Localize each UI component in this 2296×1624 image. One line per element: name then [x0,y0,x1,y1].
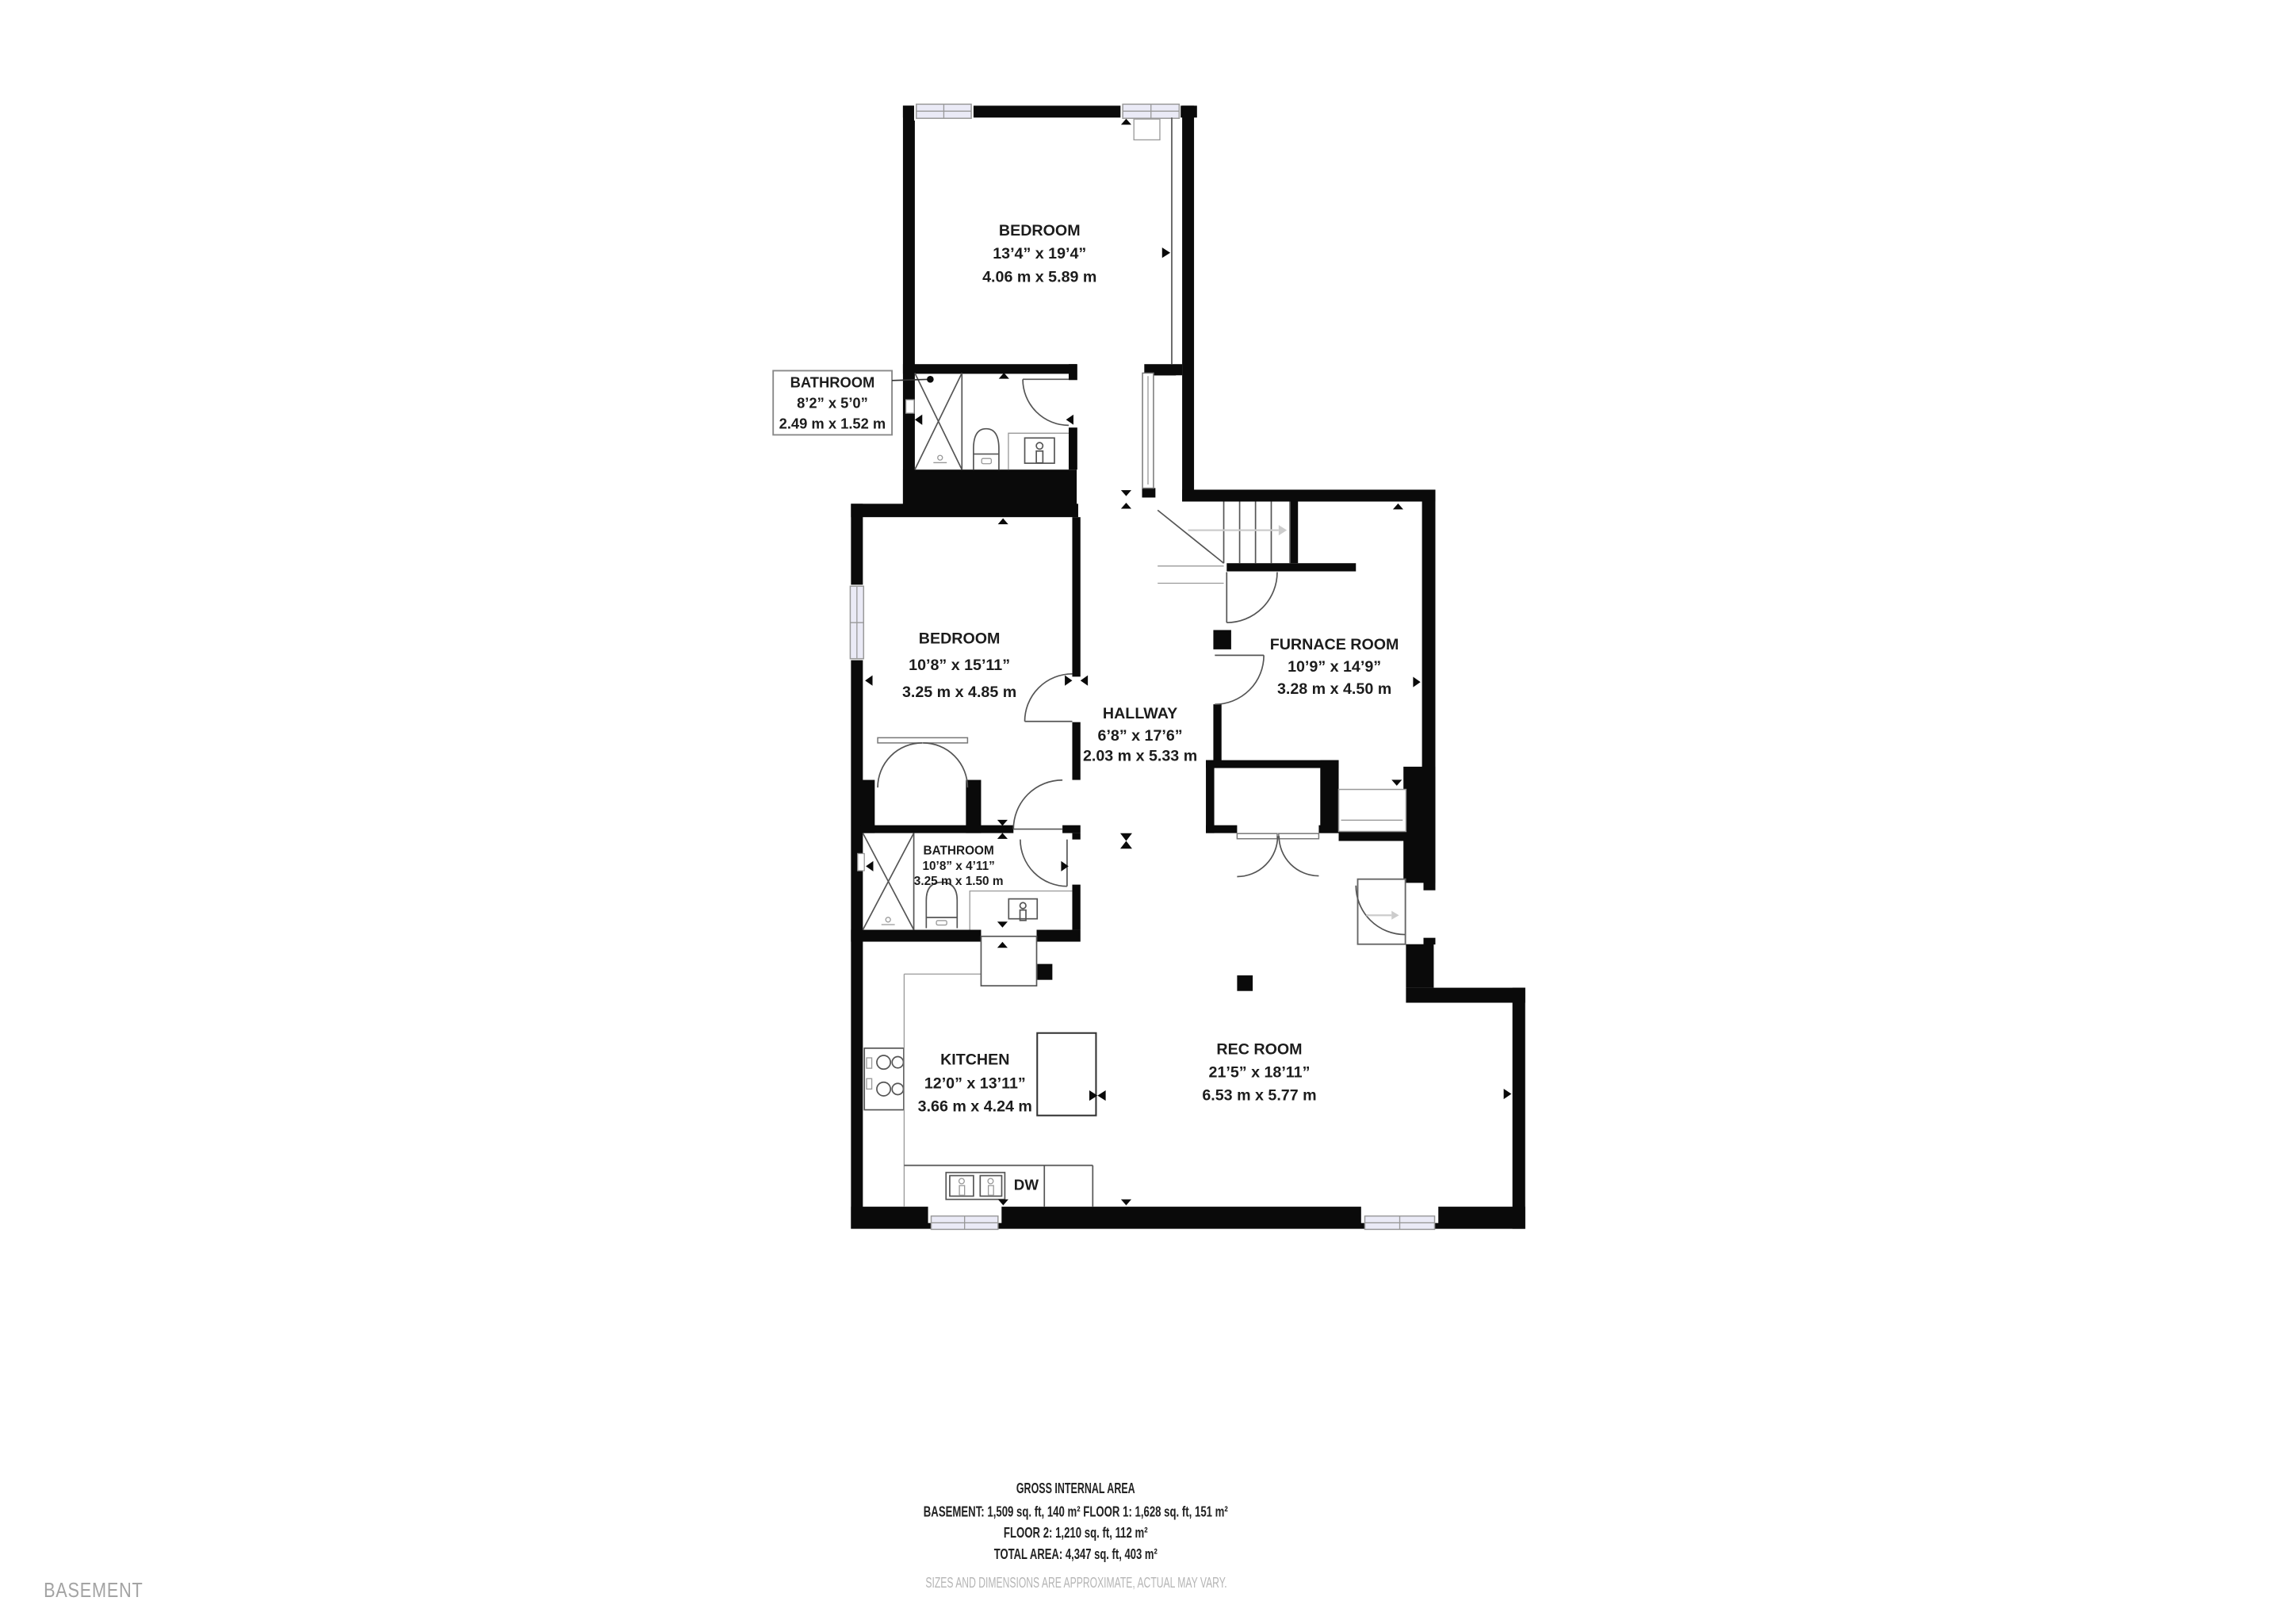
marker-corridor-up [1121,503,1131,508]
marker-recroom-window [1121,1200,1131,1205]
pocket-door-corridor [1142,373,1154,488]
window-kitchen-bottom [928,1205,1002,1230]
entry-door [1356,879,1405,944]
room-name: BATHROOM [790,373,875,390]
room-dims-metric: 3.28 m x 4.50 m [1277,680,1391,698]
marker-corridor-down [1121,490,1131,496]
shower-bathroom2 [863,833,913,930]
kitchen-sink [946,1173,1004,1200]
marker-bathroom1-door [1066,415,1073,425]
marker-bathroom1-left [915,415,922,425]
room-label-kitchen: KITCHEN 12’0” x 13’11” 3.66 m x 4.24 m [918,1051,1032,1115]
marker-hallway-hourglass-a [1120,833,1132,841]
stove [864,1048,904,1110]
room-name: HALLWAY [1103,705,1177,722]
room-dims-metric: 3.25 m x 4.85 m [902,684,1016,701]
window-bedroom1-left [914,102,974,121]
room-dims-imperial: 10’8” x 15’11” [909,657,1010,674]
room-name: KITCHEN [940,1051,1009,1068]
marker-understair [1391,779,1402,785]
marker-bedroom2-top [998,519,1008,524]
floorplan-page: BEDROOM 13’4” x 19’4” 4.06 m x 5.89 m BA… [0,0,2296,1624]
marker-bedroom2-left [865,676,872,686]
kitchen-island [1037,1033,1096,1116]
door-furnace-from-hallway [1215,655,1264,704]
room-dims-imperial: 8’2” x 5’0” [797,394,868,411]
window-bedroom2-left [849,584,866,660]
marker-furnace-top [1393,504,1403,509]
room-name: BEDROOM [919,630,1001,647]
sink-bathroom1 [1008,433,1069,469]
toilet-bathroom2 [926,883,957,929]
room-dims-imperial: 6’8” x 17’6” [1098,727,1183,745]
room-dims-metric: 2.49 m x 1.52 m [779,416,886,432]
room-label-bedroom-1: BEDROOM 13’4” x 19’4” 4.06 m x 5.89 m [982,222,1096,285]
room-name: BEDROOM [999,222,1081,239]
closet-doors-bedroom2 [878,737,967,787]
dishwasher-label: DW [1014,1177,1039,1193]
fridge [981,936,1036,986]
window-bathroom2-notch [858,853,864,871]
understair-closet [1339,790,1406,832]
marker-bedroom2-door-a [1065,676,1072,686]
room-label-hallway: HALLWAY 6’8” x 17’6” 2.03 m x 5.33 m [1083,705,1197,764]
door-bathroom2 [1020,840,1067,887]
room-label-bedroom-2: BEDROOM 10’8” x 15’11” 3.25 m x 4.85 m [902,630,1016,700]
marker-bedroom1-right [1162,247,1170,258]
room-dims-imperial: 12’0” x 13’11” [924,1074,1026,1092]
gross-area-title: GROSS INTERNAL AREA [1016,1480,1135,1496]
window-recroom-bottom [1361,1205,1438,1230]
room-name: FURNACE ROOM [1270,636,1399,653]
basement-floorplan: BEDROOM 13’4” x 19’4” 4.06 m x 5.89 m BA… [0,0,2296,1624]
footer: GROSS INTERNAL AREA BASEMENT: 1,509 sq. … [924,1480,1228,1591]
closet-doors-hallway [1237,833,1318,876]
marker-bathroom2-left [866,861,873,871]
room-dims-metric: 6.53 m x 5.77 m [1202,1086,1316,1104]
marker-kitchen-window [998,1200,1008,1205]
gross-area-total: TOTAL AREA: 4,347 sq. ft, 403 m² [994,1545,1158,1562]
marker-bedroom2-door-b [1081,676,1088,686]
toilet-bathroom1 [974,429,999,470]
room-name: REC ROOM [1216,1040,1302,1058]
room-dims-imperial: 10’9” x 14’9” [1288,658,1381,676]
bedroom1-closet [1134,117,1172,364]
stairs-up-arrow [1279,525,1287,535]
room-dims-imperial: 13’4” x 19’4” [993,245,1086,262]
gross-area-line2: FLOOR 2: 1,210 sq. ft, 112 m² [1004,1524,1148,1541]
marker-furnace-right [1413,677,1420,688]
marker-island-b [1097,1090,1105,1101]
room-dims-imperial: 10’8” x 4’11” [922,860,994,873]
window-bathroom1-notch [906,400,914,413]
room-name: BATHROOM [924,844,994,857]
room-dims-metric: 3.25 m x 1.50 m [914,875,1004,888]
room-dims-metric: 3.66 m x 4.24 m [918,1097,1032,1115]
marker-alcove-door-b [997,833,1008,838]
marker-kitchen-pass-a [997,921,1008,927]
marker-alcove-door-a [997,820,1008,825]
room-label-furnace-room: FURNACE ROOM 10’9” x 14’9” 3.28 m x 4.50… [1270,636,1399,698]
label-leader-line [892,379,930,380]
room-label-bathroom-2: BATHROOM 10’8” x 4’11” 3.25 m x 1.50 m [914,844,1004,887]
gross-area-line1: BASEMENT: 1,509 sq. ft, 140 m² FLOOR 1: … [924,1503,1228,1519]
door-bathroom1 [1023,379,1069,425]
label-leader-dot [927,376,934,383]
sink-bathroom2 [970,891,1072,930]
floor-name-tag: BASEMENT [44,1578,143,1602]
room-dims-imperial: 21’5” x 18’11” [1209,1063,1311,1081]
door-hall-alcove [1013,780,1062,829]
marker-hallway-hourglass-b [1120,841,1132,849]
room-dims-metric: 4.06 m x 5.89 m [982,268,1096,285]
room-label-rec-room: REC ROOM 21’5” x 18’11” 6.53 m x 5.77 m [1202,1040,1316,1104]
footer-disclaimer: SIZES AND DIMENSIONS ARE APPROXIMATE, AC… [925,1574,1226,1591]
door-furnace-from-landing [1226,572,1277,622]
marker-recroom-right [1504,1089,1512,1099]
room-dims-metric: 2.03 m x 5.33 m [1083,747,1197,764]
